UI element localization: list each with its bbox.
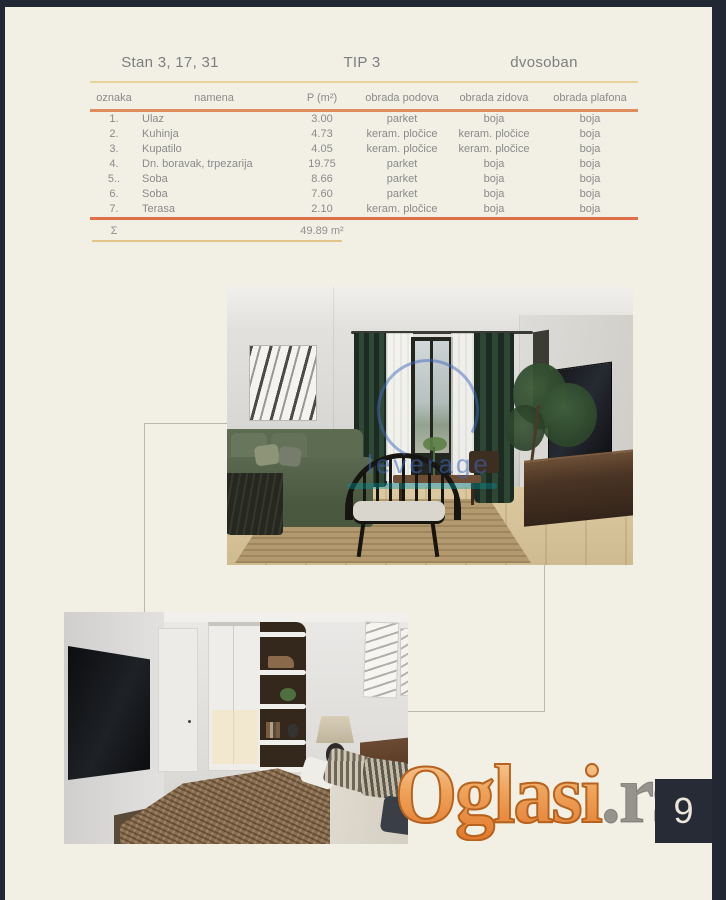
table-body: 1. Ulaz 3.00 parket boja boja 2. Kuhinja… bbox=[88, 112, 640, 217]
watermark-brand: Oglasi bbox=[395, 748, 601, 841]
table-cell: 19.75 bbox=[288, 157, 356, 172]
table-column-header: obrada plafona bbox=[540, 91, 640, 106]
table-cell: boja bbox=[448, 172, 540, 187]
table-header: oznaka namena P (m²) obrada podova obrad… bbox=[88, 91, 640, 106]
door-handle bbox=[188, 720, 191, 723]
bedroom-photo bbox=[64, 612, 408, 844]
site-watermark: Oglasi.rs bbox=[395, 753, 682, 837]
table-cell: 3.00 bbox=[288, 112, 356, 127]
table-cell: 7. bbox=[88, 202, 140, 217]
catalog-page: { "page": { "background": "#f2efe4", "fr… bbox=[0, 0, 726, 900]
table-cell: 2. bbox=[88, 127, 140, 142]
table-column-header: P (m²) bbox=[288, 91, 356, 106]
page-border-left bbox=[0, 0, 5, 900]
table-cell: Terasa bbox=[140, 202, 288, 217]
table-cell: keram. pločice bbox=[356, 202, 448, 217]
shelf-books bbox=[266, 722, 280, 738]
tall-plant bbox=[539, 383, 597, 447]
table-column-header: obrada podova bbox=[356, 91, 448, 106]
table-column-header: namena bbox=[140, 91, 288, 106]
rule-orange-bottom bbox=[90, 217, 638, 220]
table-cell: boja bbox=[540, 157, 640, 172]
wall-art bbox=[400, 628, 408, 696]
sum-symbol: Σ bbox=[88, 224, 140, 239]
shelf-plant bbox=[280, 688, 296, 701]
table-cell: keram. pločice bbox=[356, 142, 448, 157]
layout-title: dvosoban bbox=[478, 54, 610, 71]
table-cell: 6. bbox=[88, 187, 140, 202]
table-cell: 4.73 bbox=[288, 127, 356, 142]
photo-watermark-text: leverage bbox=[319, 449, 539, 480]
wall-art bbox=[363, 621, 400, 698]
table-cell: 3. bbox=[88, 142, 140, 157]
photo-watermark-subline bbox=[347, 483, 497, 489]
page-number-badge: 9 bbox=[655, 779, 712, 843]
table-cell: boja bbox=[540, 172, 640, 187]
shelf bbox=[260, 704, 306, 709]
table-cell: boja bbox=[448, 187, 540, 202]
type-title: TIP 3 bbox=[298, 54, 426, 71]
sum-value: 49.89 m² bbox=[288, 224, 356, 239]
page-border-top bbox=[0, 0, 726, 7]
table-cell: boja bbox=[540, 202, 640, 217]
table-cell: boja bbox=[448, 202, 540, 217]
table-cell: parket bbox=[356, 187, 448, 202]
rule-gold-top bbox=[90, 81, 638, 83]
wall-tv bbox=[68, 646, 150, 780]
table-column-header: obrada zidova bbox=[448, 91, 540, 106]
table-sum-row: Σ 49.89 m² bbox=[88, 224, 640, 239]
table-cell: boja bbox=[448, 157, 540, 172]
table-cell: boja bbox=[540, 127, 640, 142]
table-cell: 5.. bbox=[88, 172, 140, 187]
shelf-decor-ship bbox=[268, 656, 294, 668]
table-cell: Soba bbox=[140, 187, 288, 202]
table-cell: 8.66 bbox=[288, 172, 356, 187]
sofa-pillow bbox=[278, 446, 302, 467]
tv-sideboard bbox=[524, 449, 633, 527]
sunlight-patch bbox=[212, 710, 258, 764]
page-border-right bbox=[712, 0, 726, 900]
table-cell: parket bbox=[356, 112, 448, 127]
table-cell: Soba bbox=[140, 172, 288, 187]
page-number: 9 bbox=[673, 790, 693, 832]
table-title-row: Stan 3, 17, 31 TIP 3 dvosoban bbox=[0, 54, 726, 74]
table-cell: boja bbox=[448, 112, 540, 127]
armchair-seat bbox=[353, 501, 445, 521]
table-cell: keram. pločice bbox=[448, 127, 540, 142]
table-cell: boja bbox=[540, 187, 640, 202]
table-cell: 4.05 bbox=[288, 142, 356, 157]
shelf bbox=[260, 740, 306, 745]
throw-blanket bbox=[227, 473, 283, 535]
table-cell: Ulaz bbox=[140, 112, 288, 127]
living-room-photo: leverage bbox=[227, 287, 633, 565]
table-cell: boja bbox=[540, 142, 640, 157]
apartment-title: Stan 3, 17, 31 bbox=[90, 54, 250, 71]
table-cell: 1. bbox=[88, 112, 140, 127]
table-cell: boja bbox=[540, 112, 640, 127]
table-cell: parket bbox=[356, 172, 448, 187]
shelf bbox=[260, 632, 306, 637]
table-cell: keram. pločice bbox=[448, 142, 540, 157]
table-cell: parket bbox=[356, 157, 448, 172]
table-column-header: oznaka bbox=[88, 91, 140, 106]
sofa-pillow bbox=[254, 443, 281, 466]
shelf-vase bbox=[288, 724, 298, 738]
spacer bbox=[140, 224, 288, 239]
table-cell: Dn. boravak, trpezarija bbox=[140, 157, 288, 172]
shelf bbox=[260, 670, 306, 675]
table-lamp bbox=[316, 716, 354, 743]
door bbox=[158, 628, 198, 772]
table-cell: Kupatilo bbox=[140, 142, 288, 157]
rule-sum-underline bbox=[92, 240, 342, 242]
table-cell: Kuhinja bbox=[140, 127, 288, 142]
table-cell: keram. pločice bbox=[356, 127, 448, 142]
wall-art bbox=[249, 345, 317, 421]
table-cell: 4. bbox=[88, 157, 140, 172]
table-cell: 2.10 bbox=[288, 202, 356, 217]
table-cell: 7.60 bbox=[288, 187, 356, 202]
